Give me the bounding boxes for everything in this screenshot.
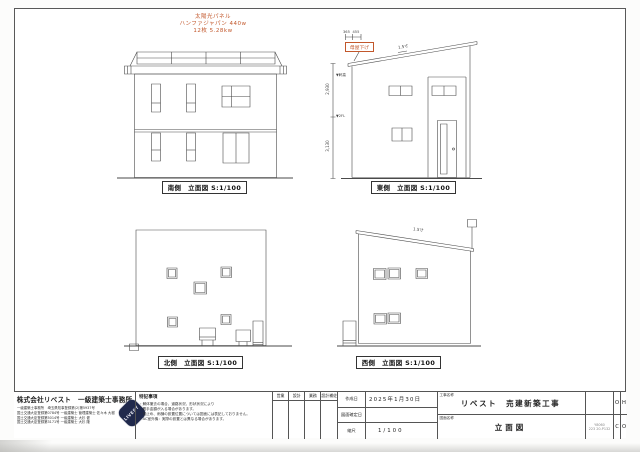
south-elevation-drawing — [117, 52, 293, 178]
north-elevation-drawing — [124, 230, 292, 351]
company-line: 国土交通大臣登録第3171号 一級建築士 大杉 隆 — [17, 420, 119, 425]
company-cell: 株式会社リベスト 一級建築士事務所 一級建築士事務所 埼玉県知事登録第(2)第5… — [14, 392, 135, 439]
elevation-linework — [0, 0, 640, 452]
corner-letter: O — [620, 415, 627, 439]
level-label-lower: ▼2FL — [336, 114, 345, 118]
corner-letter: H — [620, 392, 627, 414]
approval-col-works: 業務 — [304, 392, 320, 439]
project-name: リベスト 売建新築工事 — [448, 392, 573, 414]
approval-header: 設計補佐 — [321, 392, 337, 401]
approval-header: 業務 — [305, 392, 320, 401]
scan-shadow-corner — [0, 440, 70, 452]
drawing-code-line2: 223 20-P132 — [589, 427, 611, 432]
scale-label: 縮尺 — [338, 423, 366, 439]
date-row-fixed: 図面確定日 — [338, 408, 438, 424]
dim-top-left: 365 — [343, 30, 350, 34]
approval-col-assistant: 設計補佐 — [320, 392, 337, 439]
date-created-value: 2025年1月30日 — [366, 395, 438, 403]
notes-title: 特記事項 — [139, 394, 272, 400]
vertical-dim-lower: 3,130 — [325, 136, 333, 156]
date-row-created: 作成日 2025年1月30日 — [338, 392, 438, 408]
approval-col-sales: 営業 — [273, 392, 288, 439]
approval-header: 設計 — [289, 392, 304, 401]
solar-note-line1: 太陽光パネル — [152, 14, 274, 21]
moyasage-annotation: 母屋下げ — [345, 42, 374, 52]
scale-value: 1/100 — [366, 428, 438, 434]
approval-col-design: 設計 — [288, 392, 304, 439]
dim-top-right: 455 — [353, 30, 360, 34]
north-elevation-label: 北側 立面図 S:1/100 — [158, 356, 243, 369]
notes-cell: 特記事項 ・解体撤去の場合、道路状況、形状状況により 着手金額が入る場合がありま… — [135, 392, 272, 439]
level-label-upper: ▼軒高 — [336, 73, 346, 78]
west-elevation-drawing — [337, 220, 481, 347]
corner-row-bottom: C O — [614, 415, 627, 439]
roof-pitch-west: 1.5寸 — [413, 226, 424, 233]
corner-initial-cells: O H C O — [613, 392, 626, 439]
project-name-row: 工事名称 リベスト 売建新築工事 — [438, 392, 614, 415]
project-cell: 工事名称 リベスト 売建新築工事 図面名称 立面図 Y8060 223 20-P… — [437, 392, 613, 439]
note-line: ・AC室外機：実際の設置とは異なる場合があります。 — [139, 417, 272, 422]
scan-shadow — [0, 443, 640, 452]
solar-note-line3: 12枚 5.28kw — [152, 28, 274, 35]
solar-panel-note: 太陽光パネル ハンファジャパン 440w 12枚 5.28kw — [152, 14, 274, 35]
company-registration-lines: 一級建築士事務所 埼玉県知事登録第(2)第5937号 国土交通大臣登録第0784… — [17, 406, 119, 425]
east-elevation-label: 東側 立面図 S:1/100 — [371, 181, 456, 194]
title-block: 株式会社リベスト 一級建築士事務所 一級建築士事務所 埼玉県知事登録第(2)第5… — [14, 391, 626, 438]
company-line: 国土交通大臣登録第0784号 一級建築士 管理建築士 佐々木 大樹 — [17, 411, 119, 416]
drawing-code-cell: Y8060 223 20-P132 — [585, 415, 614, 439]
solar-note-line2: ハンファジャパン 440w — [152, 21, 274, 28]
west-elevation-label: 西側 立面図 S:1/100 — [356, 356, 441, 369]
date-created-label: 作成日 — [338, 392, 366, 407]
vertical-dim-upper: 2,930 — [325, 79, 333, 99]
corner-row-top: O H — [614, 392, 627, 415]
company-name: 株式会社リベスト 一級建築士事務所 — [14, 394, 135, 404]
scale-row: 縮尺 1/100 — [338, 423, 438, 439]
approval-grid: 営業 設計 業務 設計補佐 — [272, 392, 337, 439]
east-elevation-drawing — [331, 34, 483, 179]
south-elevation-label: 南側 立面図 S:1/100 — [162, 181, 247, 194]
date-fixed-label: 図面確定日 — [338, 408, 366, 423]
dates-cell: 作成日 2025年1月30日 図面確定日 縮尺 1/100 — [337, 392, 437, 439]
approval-header: 営業 — [273, 392, 288, 401]
drawing-name: 立面図 — [448, 415, 573, 439]
